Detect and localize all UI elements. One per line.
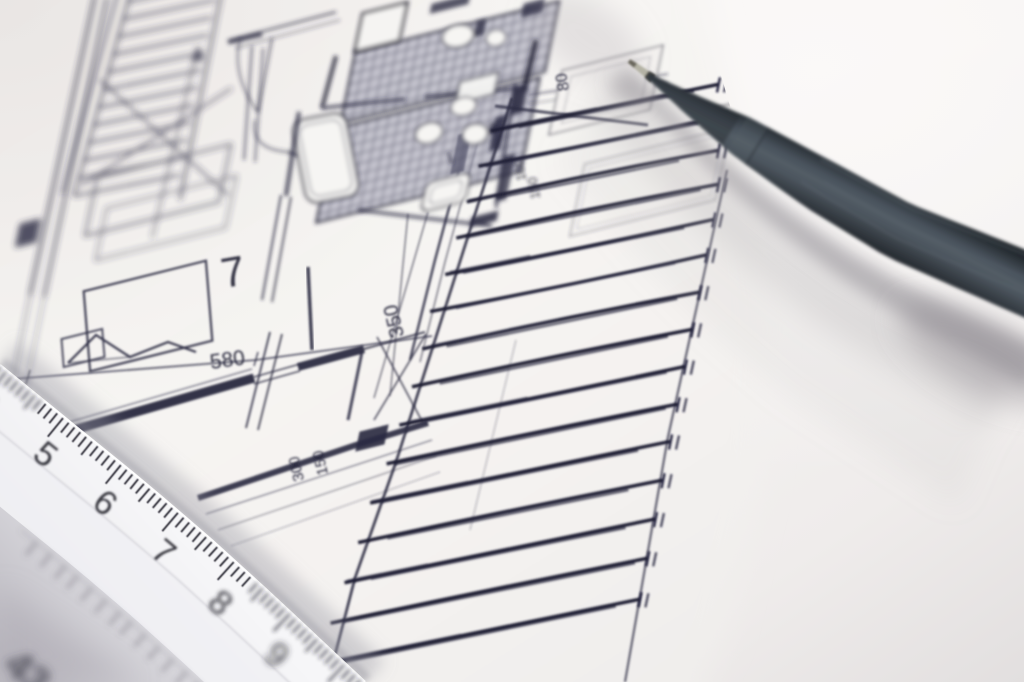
svg-text:580: 580 [208, 346, 246, 374]
svg-text:80: 80 [553, 72, 573, 93]
